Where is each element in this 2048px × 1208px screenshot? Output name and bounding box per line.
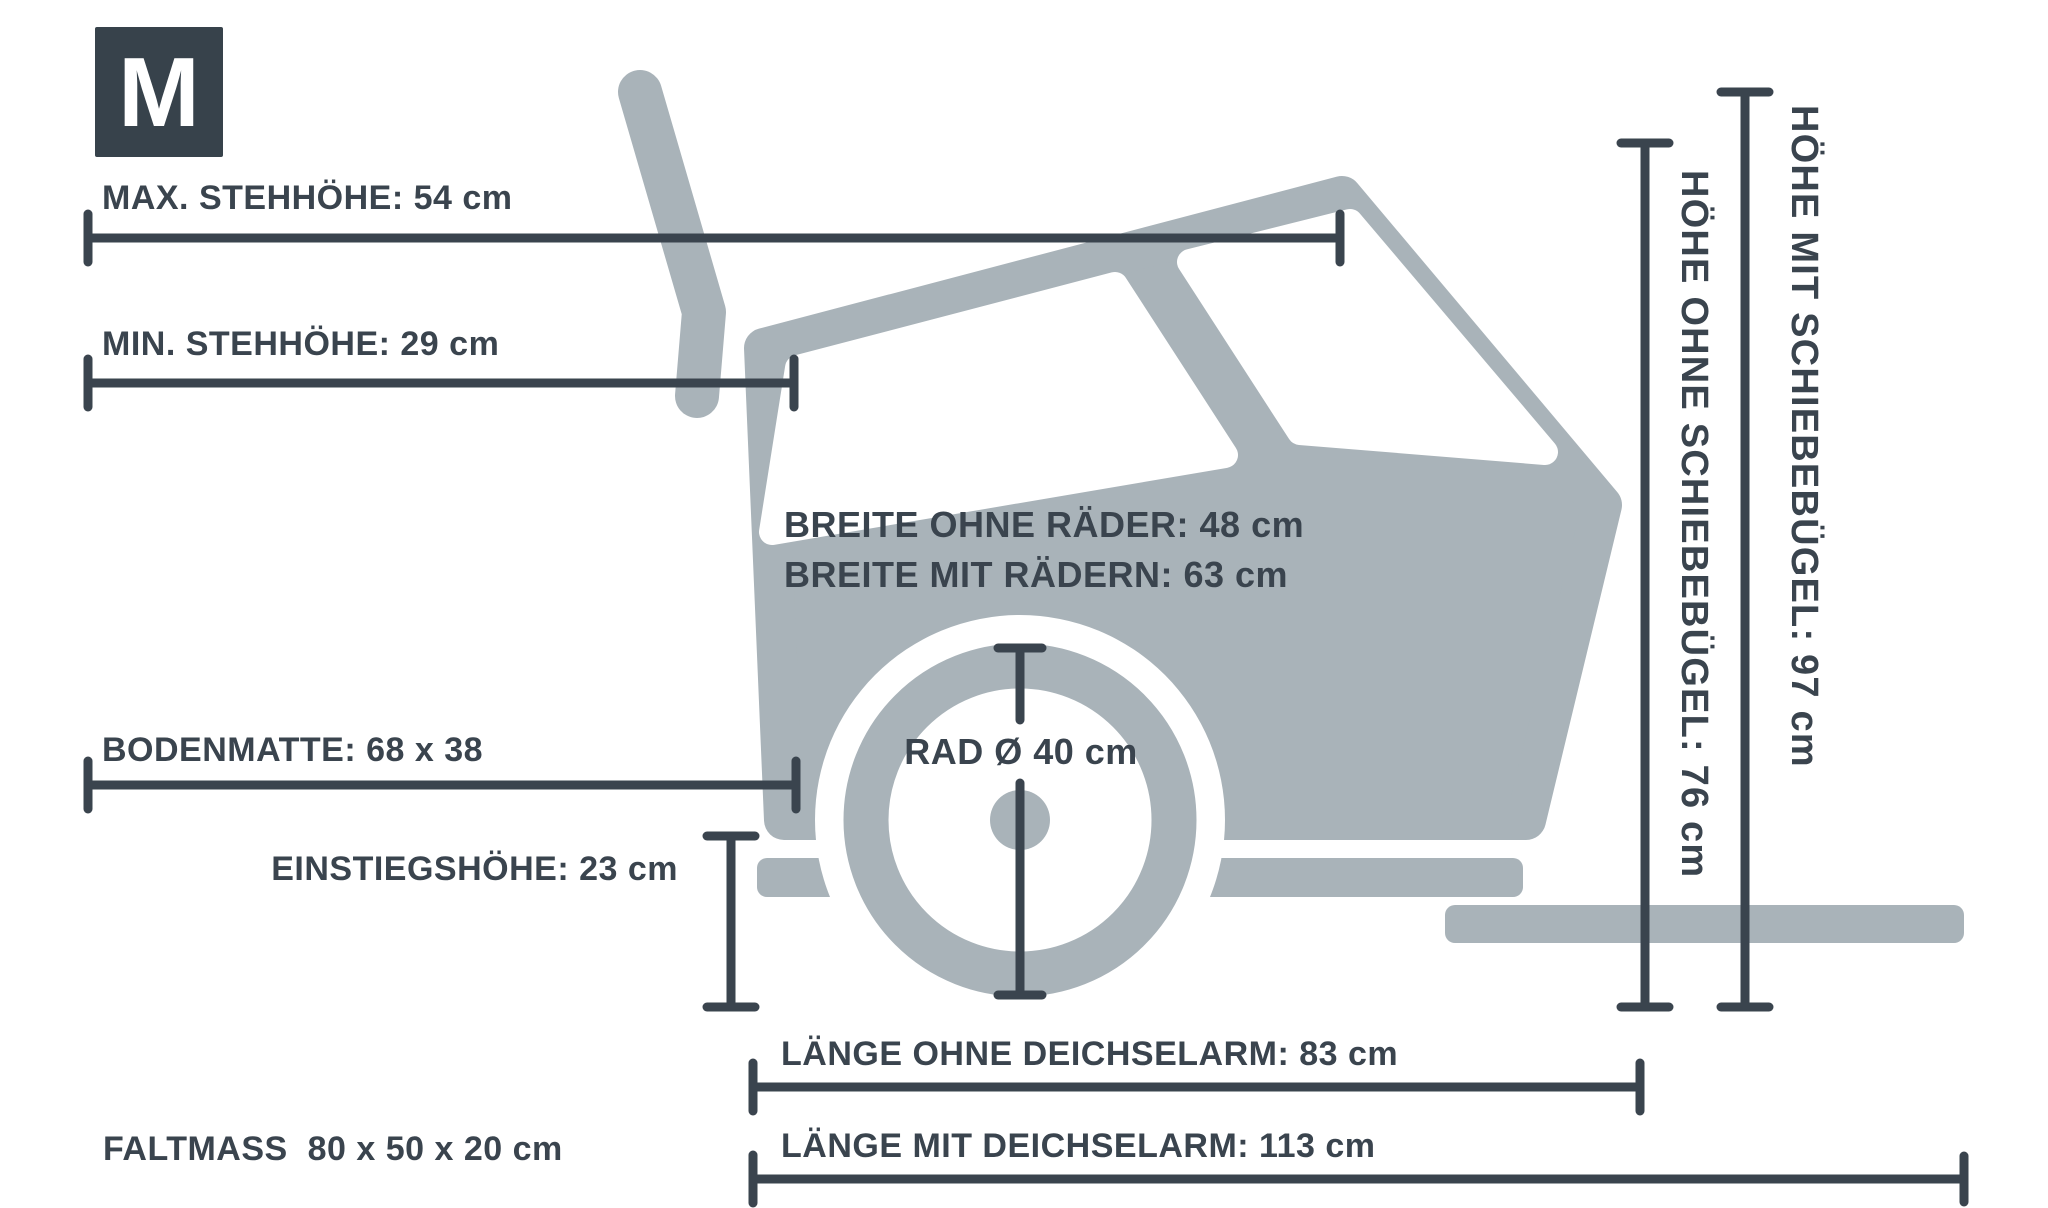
push-handle-shape [640,92,704,396]
label-min-stehhoehe: MIN. STEHHÖHE: 29 cm [102,326,499,363]
label-max-stehhoehe: MAX. STEHHÖHE: 54 cm [102,180,513,217]
label-faltmass: FALTMASS 80 x 50 x 20 cm [103,1131,563,1168]
hitch-arm-shape [1445,905,1964,943]
label-hoehe-mit-schiebebuegel: HÖHE MIT SCHIEBEBÜGEL: 97 cm [1782,105,1824,768]
diagram-canvas: M MAX. STEHHÖHE: 54 cm MIN. STEHHÖHE: 29… [0,0,2048,1208]
label-rad-durchmesser: RAD Ø 40 cm [871,732,1171,772]
dimension-einstiegshoehe [707,836,755,1007]
label-hoehe-ohne-schiebebuegel: HÖHE OHNE SCHIEBEBÜGEL: 76 cm [1672,170,1714,878]
label-breite-ohne-raeder: BREITE OHNE RÄDER: 48 cm [784,505,1304,545]
label-breite-mit-raedern: BREITE MIT RÄDERN: 63 cm [784,555,1288,595]
label-laenge-ohne-deichselarm: LÄNGE OHNE DEICHSELARM: 83 cm [781,1036,1398,1073]
size-badge: M [95,27,223,157]
dimension-hoehe-ohne [1621,143,1669,1007]
label-einstiegshoehe: EINSTIEGSHÖHE: 23 cm [260,851,678,888]
label-laenge-mit-deichselarm: LÄNGE MIT DEICHSELARM: 113 cm [781,1128,1375,1165]
dimension-hoehe-mit [1721,92,1769,1007]
label-bodenmatte: BODENMATTE: 68 x 38 [102,732,483,769]
